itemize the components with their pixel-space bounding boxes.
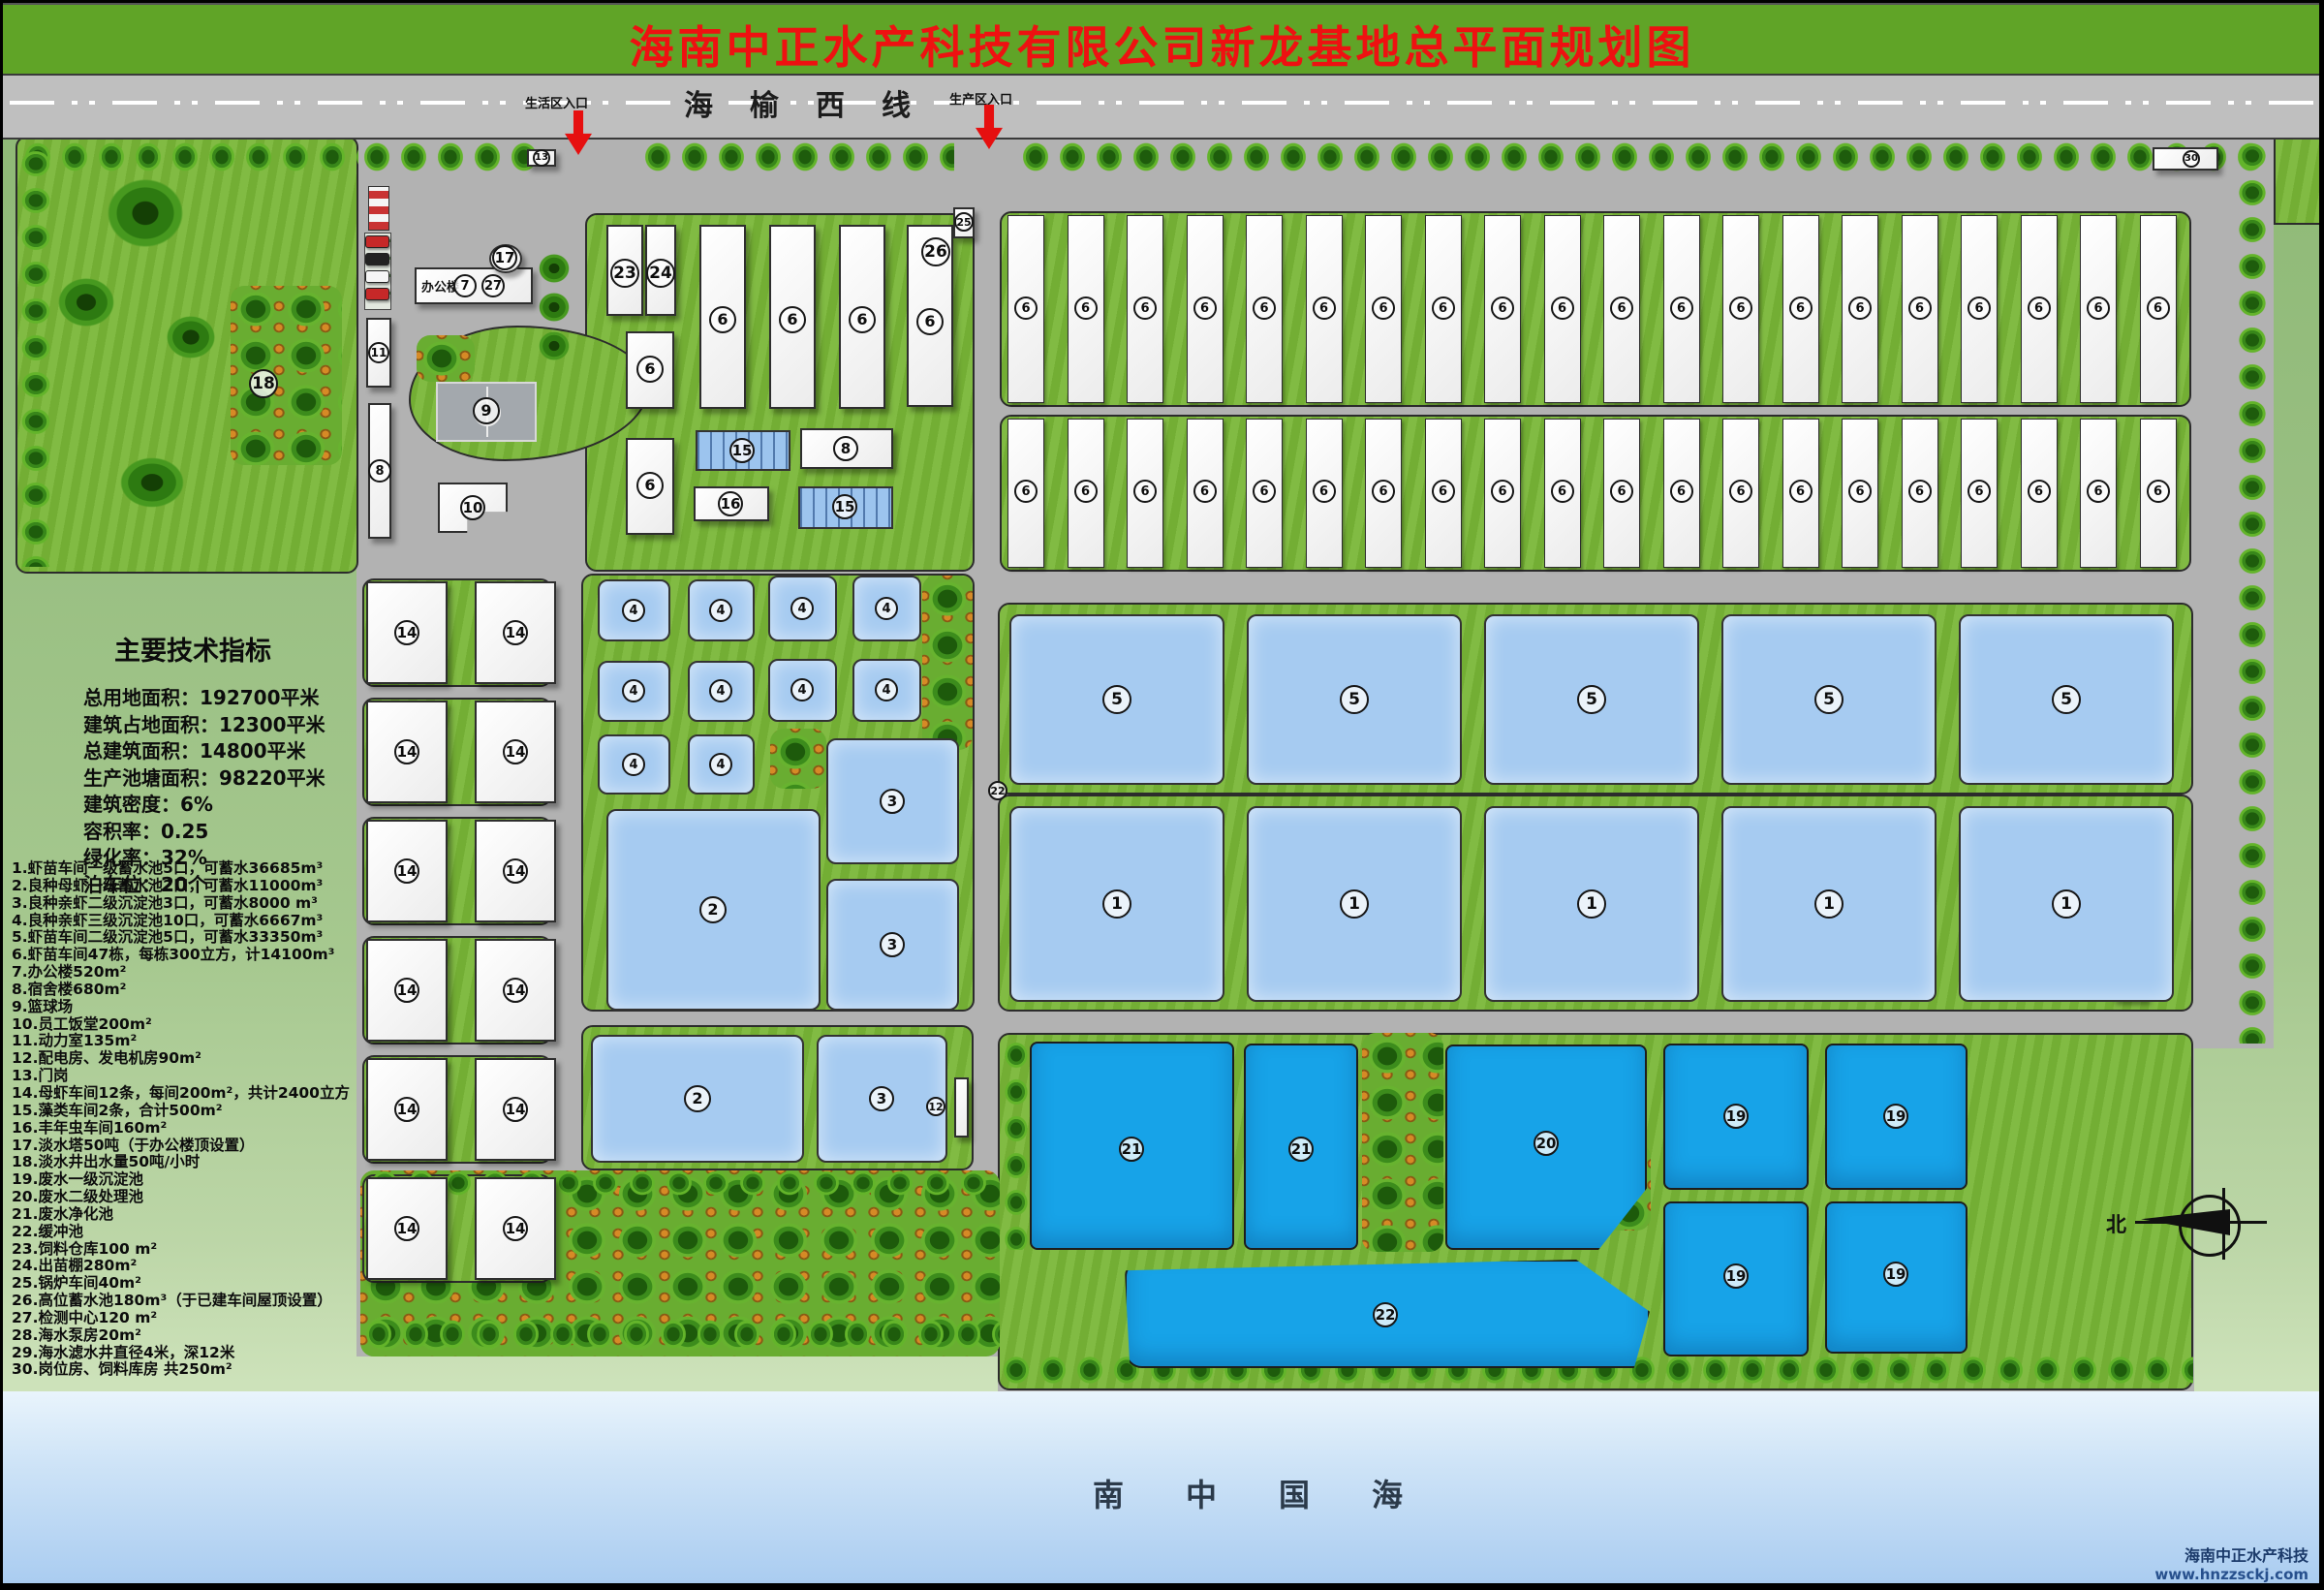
logo-name: 海南中正水产科技 xyxy=(2154,1543,2309,1566)
legend-item: 13.门岗 xyxy=(12,1068,372,1085)
legend-item: 7.办公楼520m² xyxy=(12,964,372,982)
indicator-line: 总用地面积：192700平米 xyxy=(83,685,393,712)
marker-6: 6 xyxy=(2028,480,2051,503)
marker-6: 6 xyxy=(2087,296,2110,320)
palm-tree xyxy=(535,289,573,326)
park-grove xyxy=(231,286,342,465)
tree-row xyxy=(360,1314,1000,1355)
marker-14: 14 xyxy=(394,739,419,764)
palm-tree xyxy=(50,271,122,333)
indicator-line: 容积率：0.25 xyxy=(83,819,393,846)
tree-row xyxy=(366,1166,996,1200)
sea-label: 南中国海 xyxy=(1093,1471,1465,1515)
marker-14: 14 xyxy=(503,858,528,884)
highway: 海榆西线 生活区入口 生产区入口 xyxy=(0,74,2324,140)
marker-15: 15 xyxy=(832,494,857,519)
marker-1: 1 xyxy=(1577,889,1606,919)
indicator-line: 建筑密度：6% xyxy=(83,792,393,819)
tree-column xyxy=(1000,1037,1033,1250)
marker-21: 21 xyxy=(1288,1137,1314,1162)
compass-north-label: 北 xyxy=(2106,1209,2126,1238)
marker-6: 6 xyxy=(2028,296,2051,320)
marker-6: 6 xyxy=(1729,480,1752,503)
marker-9: 9 xyxy=(473,397,500,424)
marker-24: 24 xyxy=(646,259,675,288)
legend-item: 9.篮球场 xyxy=(12,999,372,1016)
legend-item: 6.虾苗车间47栋，每栋300立方，计14100m³ xyxy=(12,947,372,964)
tree-column xyxy=(2233,138,2272,1044)
marker-6: 6 xyxy=(709,306,736,333)
marker-6: 6 xyxy=(1491,480,1514,503)
marker-20: 20 xyxy=(1534,1131,1559,1156)
legend-item: 3.良种亲虾二级沉淀池3口，可蓄水8000 m³ xyxy=(12,895,372,913)
entrance-gate xyxy=(368,186,389,231)
tree-strip xyxy=(1362,1033,1443,1252)
indicator-line: 建筑占地面积：12300平米 xyxy=(83,712,393,739)
marker-7: 7 xyxy=(453,274,477,297)
indicator-line: 总建筑面积：14800平米 xyxy=(83,738,393,765)
marker-6: 6 xyxy=(1193,296,1217,320)
corner-lawn xyxy=(2274,136,2324,225)
marker-2: 2 xyxy=(699,896,727,923)
marker-1: 1 xyxy=(2052,889,2081,919)
legend-item: 1.虾苗车间一级蓄水池5口，可蓄水36685m³ xyxy=(12,860,372,878)
legend-item: 28.海水泵房20m² xyxy=(12,1327,372,1345)
marker-22: 22 xyxy=(988,781,1007,800)
marker-6: 6 xyxy=(1014,480,1038,503)
legend-item: 15.藻类车间2条，合计500m² xyxy=(12,1103,372,1120)
legend-item: 19.废水一级沉淀池 xyxy=(12,1171,372,1189)
legend-item: 12.配电房、发电机房90m² xyxy=(12,1050,372,1068)
palm-tree xyxy=(97,170,194,257)
marker-6: 6 xyxy=(1313,296,1336,320)
legend-item: 2.良种母虾一级蓄水池2口，可蓄水11000m³ xyxy=(12,878,372,895)
marker-4: 4 xyxy=(622,599,645,622)
marker-1: 1 xyxy=(1814,889,1844,919)
workshop-block-row1 xyxy=(1000,211,2191,407)
palm-tree xyxy=(160,310,222,364)
tree-row xyxy=(1017,137,2272,177)
marker-6: 6 xyxy=(849,306,876,333)
frame-top xyxy=(0,0,2324,3)
workshop-block-row2 xyxy=(1000,415,2191,572)
marker-6: 6 xyxy=(1313,480,1336,503)
marker-5: 5 xyxy=(2052,685,2081,714)
marker-6: 6 xyxy=(636,472,664,499)
marker-6: 6 xyxy=(1014,296,1038,320)
legend-item: 18.淡水井出水量50吨/小时 xyxy=(12,1154,372,1171)
marker-6: 6 xyxy=(1789,480,1813,503)
title-banner: 海南中正水产科技有限公司新龙基地总平面规划图 xyxy=(0,0,2324,78)
logo-url: www.hnzzsckj.com xyxy=(2154,1566,2309,1583)
marker-19: 19 xyxy=(1883,1104,1908,1129)
marker-6: 6 xyxy=(1372,480,1395,503)
palm-tree xyxy=(111,451,193,514)
marker-4: 4 xyxy=(709,753,732,776)
marker-6: 6 xyxy=(1074,480,1098,503)
marker-6: 6 xyxy=(1432,296,1455,320)
marker-23: 23 xyxy=(610,259,639,288)
parked-car xyxy=(365,270,389,283)
marker-19: 19 xyxy=(1723,1104,1749,1129)
marker-13: 13 xyxy=(533,149,550,167)
marker-14: 14 xyxy=(394,978,419,1003)
company-logo: 海南中正水产科技 www.hnzzsckj.com xyxy=(2154,1543,2309,1583)
marker-14: 14 xyxy=(503,739,528,764)
marker-6: 6 xyxy=(1193,480,1217,503)
marker-15: 15 xyxy=(729,438,755,463)
indicators-title: 主要技术指标 xyxy=(114,630,393,668)
technical-indicators-panel: 主要技术指标 总用地面积：192700平米建筑占地面积：12300平米总建筑面积… xyxy=(83,630,393,898)
legend-item: 24.出苗棚280m² xyxy=(12,1258,372,1275)
flower-patch xyxy=(770,729,826,789)
marker-6: 6 xyxy=(1848,296,1872,320)
legend-item: 27.检测中心120 m² xyxy=(12,1310,372,1327)
marker-1: 1 xyxy=(1102,889,1131,919)
marker-10: 10 xyxy=(460,495,485,520)
marker-18: 18 xyxy=(249,369,278,398)
marker-1: 1 xyxy=(1340,889,1369,919)
marker-14: 14 xyxy=(503,1216,528,1241)
tree-column xyxy=(15,145,56,567)
legend-item: 11.动力室135m² xyxy=(12,1033,372,1050)
marker-4: 4 xyxy=(875,597,898,620)
marker-6: 6 xyxy=(1253,480,1276,503)
marker-11: 11 xyxy=(368,342,389,363)
entrance-left-label: 生活区入口 xyxy=(525,93,588,111)
legend-item: 4.良种亲虾三级沉淀池10口，可蓄水6667m³ xyxy=(12,913,372,930)
legend-item: 25.锅炉车间40m² xyxy=(12,1275,372,1293)
legend-item: 21.废水净化池 xyxy=(12,1206,372,1224)
highway-label: 海榆西线 xyxy=(684,81,947,124)
marker-6: 6 xyxy=(1670,296,1693,320)
tree-row xyxy=(639,137,954,177)
marker-14: 14 xyxy=(394,858,419,884)
parked-car xyxy=(365,235,389,248)
marker-8: 8 xyxy=(833,436,858,461)
marker-12: 12 xyxy=(926,1097,945,1116)
parked-car xyxy=(365,288,389,300)
marker-27: 27 xyxy=(481,274,505,297)
marker-21: 21 xyxy=(1119,1137,1144,1162)
marker-4: 4 xyxy=(709,679,732,702)
marker-6: 6 xyxy=(1432,480,1455,503)
legend-item: 23.饲料仓库100 m² xyxy=(12,1241,372,1259)
legend-item: 5.虾苗车间二级沉淀池5口，可蓄水33350m³ xyxy=(12,929,372,947)
legend-item: 16.丰年虫车间160m² xyxy=(12,1120,372,1138)
marker-4: 4 xyxy=(790,597,814,620)
marker-6: 6 xyxy=(1551,296,1574,320)
marker-6: 6 xyxy=(2147,480,2170,503)
legend-item: 20.废水二级处理池 xyxy=(12,1189,372,1206)
palm-tree xyxy=(535,250,573,287)
legend-item: 14.母虾车间12条，每间200m²，共计2400立方 xyxy=(12,1085,372,1103)
marker-14: 14 xyxy=(394,620,419,645)
marker-2: 2 xyxy=(684,1085,711,1112)
marker-17: 17 xyxy=(492,245,517,270)
legend-item: 26.高位蓄水池180m³（于已建车间屋顶设置） xyxy=(12,1293,372,1310)
marker-6: 6 xyxy=(2147,296,2170,320)
compass-icon: 北 xyxy=(2100,1184,2275,1271)
marker-6: 6 xyxy=(636,356,664,383)
marker-6: 6 xyxy=(1551,480,1574,503)
marker-6: 6 xyxy=(1074,296,1098,320)
marker-5: 5 xyxy=(1577,685,1606,714)
indicator-line: 生产池塘面积：98220平米 xyxy=(83,765,393,793)
legend-panel: 1.虾苗车间一级蓄水池5口，可蓄水36685m³2.良种母虾一级蓄水池2口，可蓄… xyxy=(12,860,372,1379)
marker-5: 5 xyxy=(1102,685,1131,714)
marker-6: 6 xyxy=(779,306,806,333)
marker-19: 19 xyxy=(1723,1263,1749,1289)
marker-6: 6 xyxy=(1372,296,1395,320)
marker-30: 30 xyxy=(2183,150,2200,168)
legend-item: 17.淡水塔50吨（于办公楼顶设置） xyxy=(12,1138,372,1155)
highway-centerline xyxy=(10,101,2314,105)
marker-6: 6 xyxy=(1491,296,1514,320)
marker-5: 5 xyxy=(1340,685,1369,714)
marker-14: 14 xyxy=(503,1097,528,1122)
legend-item: 29.海水滤水井直径4米，深12米 xyxy=(12,1345,372,1362)
marker-6: 6 xyxy=(1133,296,1157,320)
flower-strip xyxy=(922,576,973,750)
legend-item: 22.缓冲池 xyxy=(12,1224,372,1241)
marker-4: 4 xyxy=(709,599,732,622)
marker-14: 14 xyxy=(503,978,528,1003)
marker-8: 8 xyxy=(368,459,391,483)
legend-item: 8.宿舍楼680m² xyxy=(12,982,372,999)
generator-room xyxy=(954,1077,969,1138)
marker-4: 4 xyxy=(875,678,898,701)
marker-3: 3 xyxy=(880,932,905,957)
tree-row xyxy=(358,137,538,177)
marker-6: 6 xyxy=(1848,480,1872,503)
frame-bottom xyxy=(0,1583,2324,1590)
frame-left xyxy=(0,0,3,1590)
marker-14: 14 xyxy=(394,1216,419,1241)
marker-14: 14 xyxy=(503,620,528,645)
parked-car xyxy=(365,253,389,265)
marker-6: 6 xyxy=(1610,296,1633,320)
marker-6: 6 xyxy=(1789,296,1813,320)
marker-16: 16 xyxy=(718,491,743,516)
marker-19: 19 xyxy=(1883,1262,1908,1287)
legend-item: 30.岗位房、饲料库房 共250m² xyxy=(12,1361,372,1379)
marker-3: 3 xyxy=(880,789,905,814)
marker-4: 4 xyxy=(790,678,814,701)
marker-6: 6 xyxy=(1968,480,1991,503)
marker-3: 3 xyxy=(869,1086,894,1111)
marker-6: 6 xyxy=(2087,480,2110,503)
page-title: 海南中正水产科技有限公司新龙基地总平面规划图 xyxy=(0,13,2324,77)
marker-6: 6 xyxy=(1908,296,1932,320)
marker-6: 6 xyxy=(1253,296,1276,320)
site-plan: 办公楼1813727171189102324666662625615816153… xyxy=(0,0,2324,1590)
marker-6: 6 xyxy=(1670,480,1693,503)
marker-6: 6 xyxy=(1610,480,1633,503)
marker-22: 22 xyxy=(1373,1302,1398,1327)
entrance-right-label: 生产区入口 xyxy=(949,89,1012,108)
island-grove xyxy=(417,335,475,382)
marker-5: 5 xyxy=(1814,685,1844,714)
marker-14: 14 xyxy=(394,1097,419,1122)
marker-26: 26 xyxy=(921,237,950,266)
marker-4: 4 xyxy=(622,753,645,776)
marker-6: 6 xyxy=(1133,480,1157,503)
marker-25: 25 xyxy=(954,212,974,232)
marker-6: 6 xyxy=(1729,296,1752,320)
palm-tree xyxy=(535,327,573,364)
legend-item: 10.员工饭堂200m² xyxy=(12,1016,372,1034)
marker-6: 6 xyxy=(1968,296,1991,320)
frame-right xyxy=(2319,0,2324,1590)
marker-6: 6 xyxy=(916,308,944,335)
marker-6: 6 xyxy=(1908,480,1932,503)
marker-4: 4 xyxy=(622,679,645,702)
